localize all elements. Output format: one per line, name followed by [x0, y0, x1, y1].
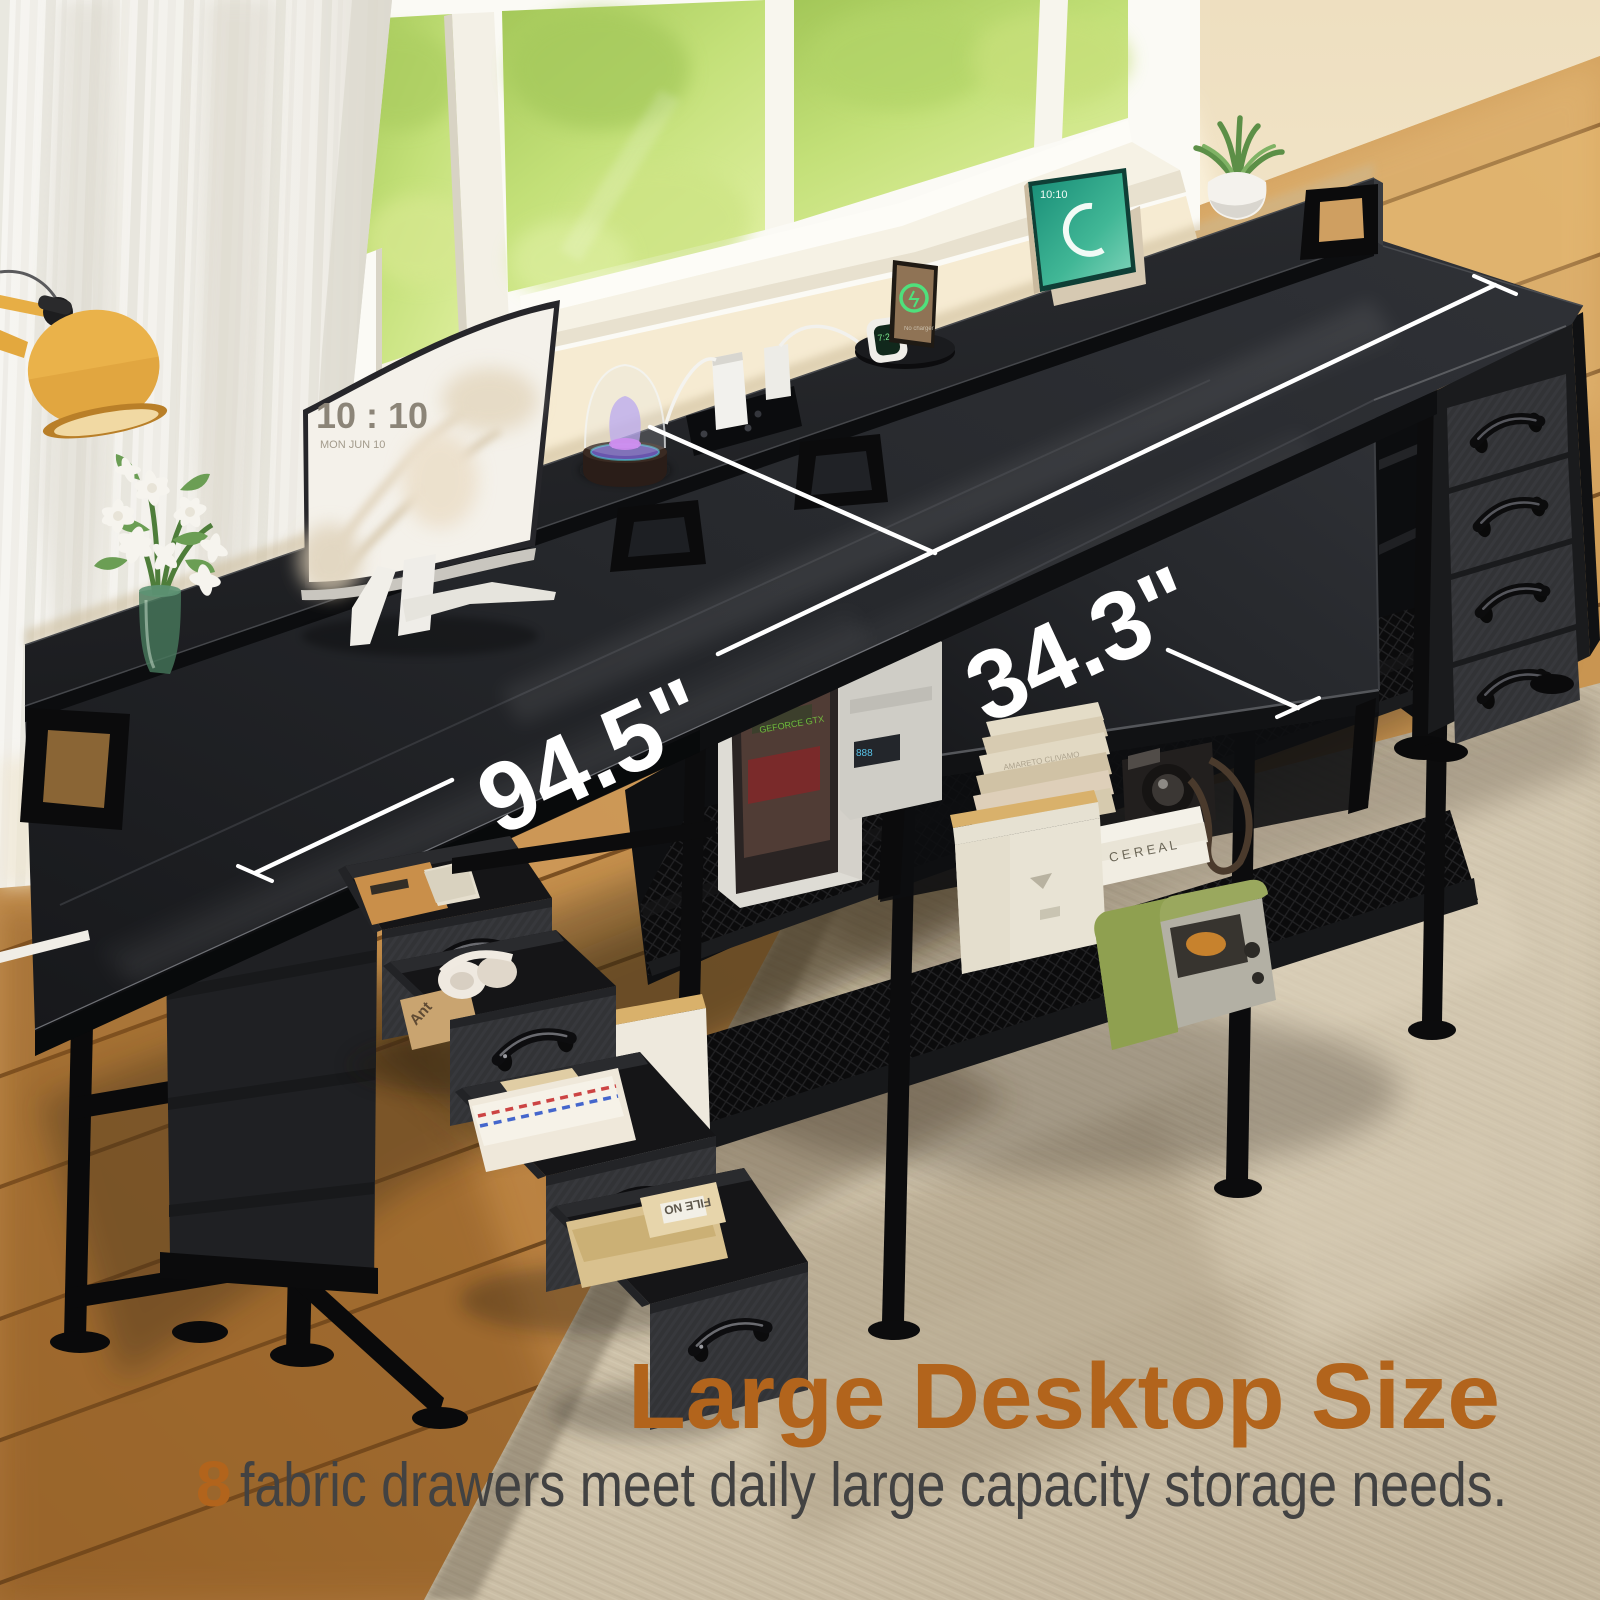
svg-text:10:10: 10:10 [1040, 189, 1068, 201]
svg-text:Large Desktop Size: Large Desktop Size [628, 1344, 1500, 1448]
svg-text:fabric drawers meet daily larg: fabric drawers meet daily large capacity… [240, 1451, 1507, 1520]
svg-text:10 : 10: 10 : 10 [316, 395, 428, 436]
svg-text:8: 8 [196, 1448, 232, 1520]
svg-text:888: 888 [856, 748, 873, 759]
svg-text:No charger: No charger [904, 326, 934, 332]
svg-text:MON JUN 10: MON JUN 10 [320, 439, 385, 451]
